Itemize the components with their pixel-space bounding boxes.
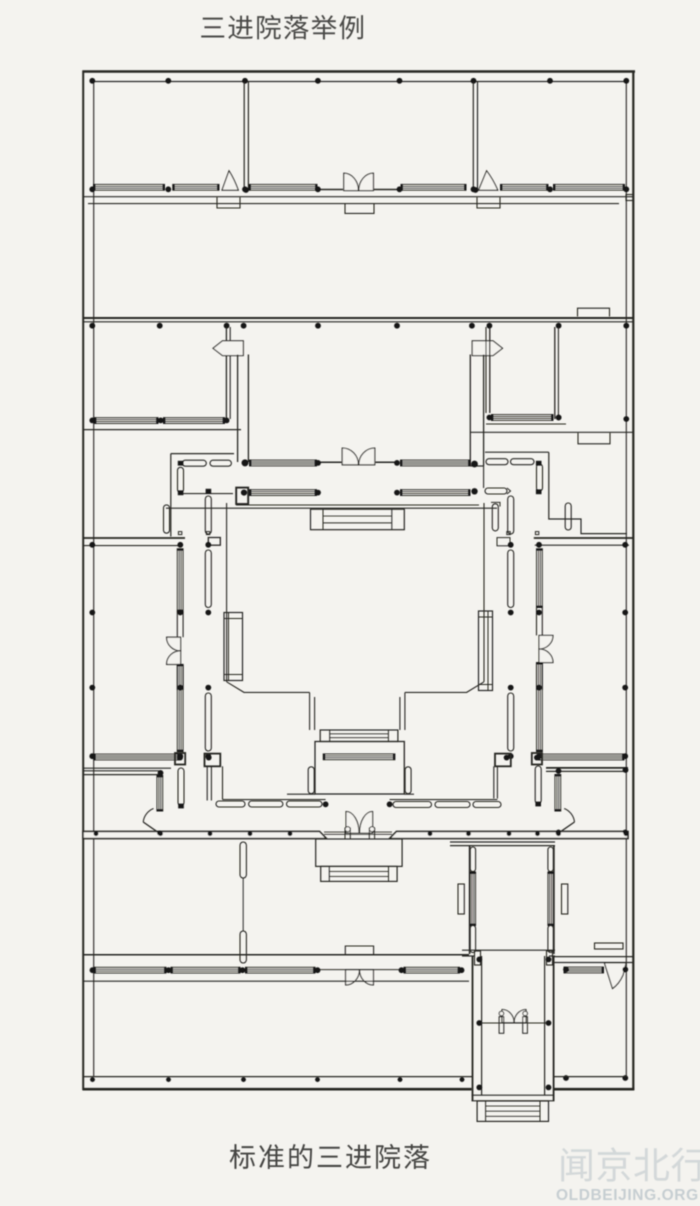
svg-text:OLDBEIJING.ORG: OLDBEIJING.ORG xyxy=(556,1187,699,1204)
